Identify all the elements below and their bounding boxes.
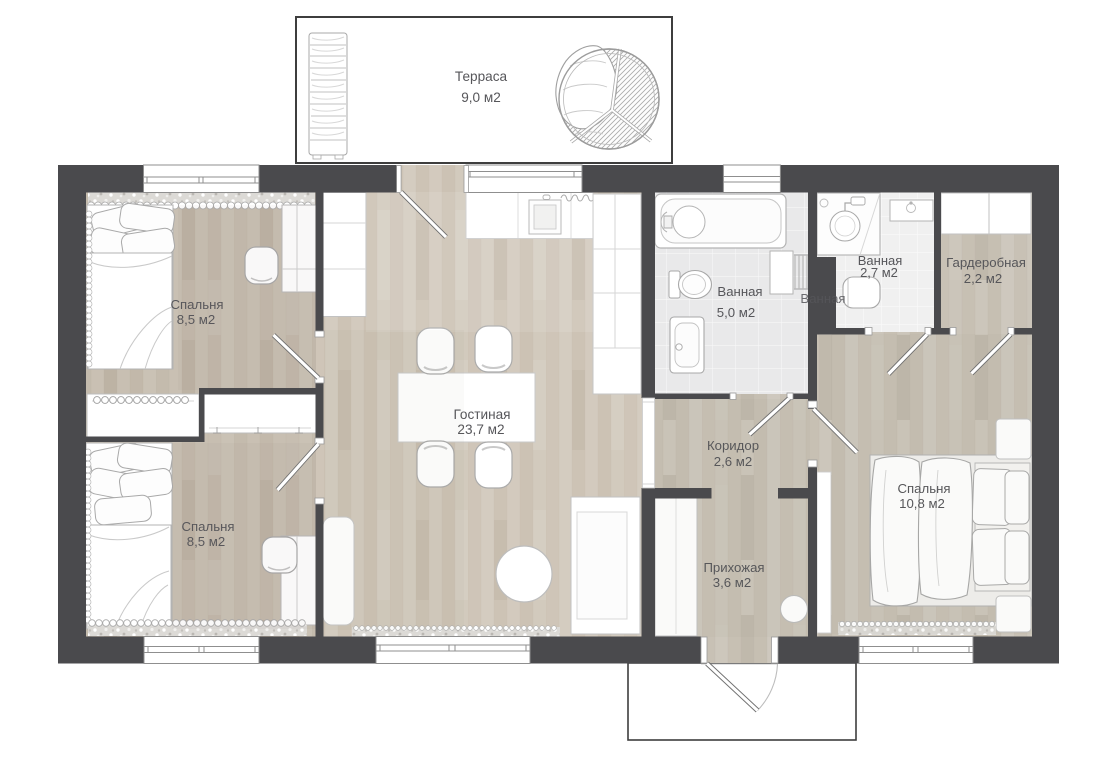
svg-text:9,0 м2: 9,0 м2 bbox=[461, 90, 501, 105]
svg-text:Терраса: Терраса bbox=[455, 69, 508, 84]
svg-text:Гардеробная: Гардеробная bbox=[946, 255, 1026, 270]
svg-text:23,7 м2: 23,7 м2 bbox=[457, 422, 504, 437]
svg-text:2,7 м2: 2,7 м2 bbox=[860, 265, 898, 280]
svg-text:2,2 м2: 2,2 м2 bbox=[964, 271, 1002, 286]
svg-text:Ванная: Ванная bbox=[717, 284, 762, 299]
svg-text:Ванная: Ванная bbox=[800, 291, 845, 306]
svg-text:5,0 м2: 5,0 м2 bbox=[717, 305, 755, 320]
